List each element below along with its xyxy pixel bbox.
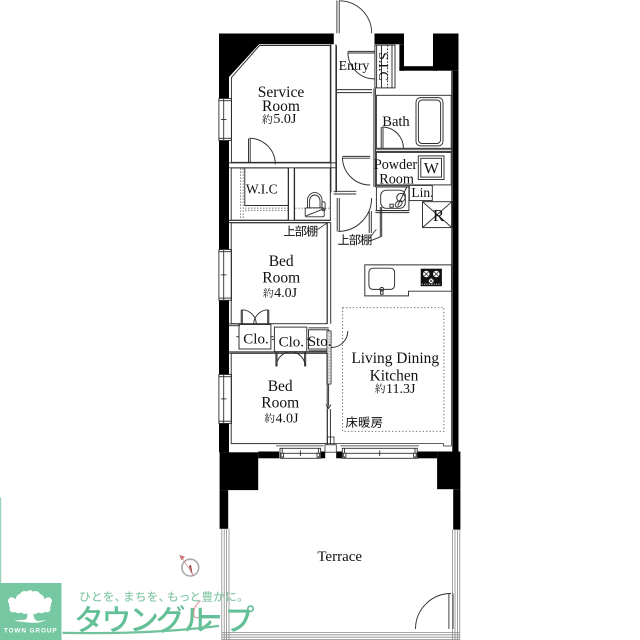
- svg-text:4.0J: 4.0J: [274, 286, 298, 301]
- svg-text:Clo.: Clo.: [279, 335, 304, 351]
- svg-text:W.I.C: W.I.C: [246, 182, 278, 197]
- svg-text:TOWN GROUP: TOWN GROUP: [4, 628, 58, 635]
- svg-text:Bath: Bath: [382, 114, 410, 130]
- svg-text:W: W: [424, 160, 440, 177]
- svg-text:Living Dining: Living Dining: [351, 350, 439, 367]
- svg-text:Room: Room: [379, 172, 414, 188]
- svg-text:Bed: Bed: [269, 253, 294, 270]
- svg-text:11.3J: 11.3J: [386, 382, 416, 397]
- svg-text:4.0J: 4.0J: [276, 411, 300, 426]
- svg-text:R: R: [433, 206, 445, 225]
- svg-text:Lin.: Lin.: [411, 185, 433, 200]
- svg-text:Terrace: Terrace: [317, 549, 362, 565]
- svg-text:S.I.C: S.I.C: [375, 52, 390, 81]
- svg-text:Bed: Bed: [268, 378, 293, 395]
- svg-text:Room: Room: [261, 395, 299, 412]
- svg-text:Entry: Entry: [339, 58, 370, 73]
- svg-text:Room: Room: [262, 270, 300, 287]
- svg-text:5.0J: 5.0J: [273, 112, 297, 127]
- svg-text:Sto.: Sto.: [308, 334, 332, 350]
- svg-text:Clo.: Clo.: [243, 332, 268, 348]
